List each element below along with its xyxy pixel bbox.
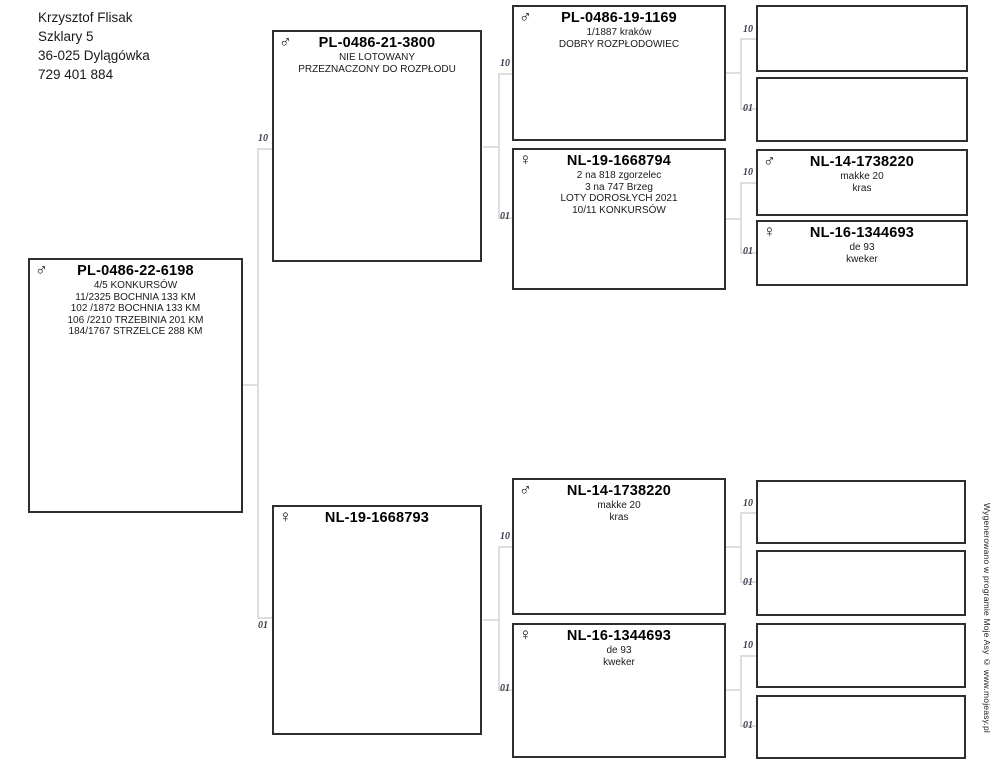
connector-line — [257, 148, 272, 150]
pedigree-box-sire-sire: ♂ PL-0486-19-1169 1/1887 kraków DOBRY RO… — [512, 5, 726, 141]
result-line: kras — [514, 512, 724, 524]
owner-info: Krzysztof Flisak Szklary 5 36-025 Dylągó… — [38, 8, 150, 84]
female-icon: ♀ — [763, 222, 776, 241]
ring-number: NL-19-1668793 — [274, 510, 480, 526]
male-icon: ♂ — [519, 7, 532, 26]
owner-phone: 729 401 884 — [38, 65, 150, 84]
sire-code-label: 10 — [729, 640, 753, 651]
pedigree-box-dam-sire-dam-empty — [756, 550, 966, 616]
pedigree-box-sire-dam: ♀ NL-19-1668794 2 na 818 zgorzelec 3 na … — [512, 148, 726, 290]
ring-number: PL-0486-19-1169 — [514, 10, 724, 26]
pedigree-page: Krzysztof Flisak Szklary 5 36-025 Dylągó… — [0, 0, 1000, 768]
pedigree-box-subject: ♂ PL-0486-22-6198 4/5 KONKURSÓW 11/2325 … — [28, 258, 243, 513]
sire-code-label: 10 — [729, 24, 753, 35]
dam-code-label: 01 — [486, 683, 510, 694]
result-line: kweker — [758, 254, 966, 266]
connector-line — [740, 182, 742, 253]
connector-line — [257, 148, 259, 619]
result-line: 4/5 KONKURSÓW — [30, 280, 241, 292]
female-icon: ♀ — [519, 150, 532, 169]
ring-number: NL-16-1344693 — [514, 628, 724, 644]
result-line: DOBRY ROZPŁODOWIEC — [514, 39, 724, 51]
male-icon: ♂ — [35, 260, 48, 279]
pedigree-box-dam-dam: ♀ NL-16-1344693 de 93 kweker — [512, 623, 726, 758]
result-line: PRZEZNACZONY DO ROZPŁODU — [274, 64, 480, 76]
ring-number: NL-14-1738220 — [758, 154, 966, 170]
result-line: 11/2325 BOCHNIA 133 KM — [30, 292, 241, 304]
pedigree-box-sire-sire-dam-empty — [756, 77, 968, 142]
result-line: LOTY DOROSŁYCH 2021 — [514, 193, 724, 205]
connector-line — [740, 655, 742, 727]
female-icon: ♀ — [279, 507, 292, 526]
owner-address-line2: 36-025 Dylągówka — [38, 46, 150, 65]
result-line: 2 na 818 zgorzelec — [514, 170, 724, 182]
pedigree-box-dam-dam-sire-empty — [756, 623, 966, 688]
ring-number: NL-14-1738220 — [514, 483, 724, 499]
result-line: 102 /1872 BOCHNIA 133 KM — [30, 303, 241, 315]
connector-line — [257, 617, 272, 619]
connector-line — [498, 73, 512, 75]
pedigree-box-dam-dam-dam-empty — [756, 695, 966, 759]
ring-number: PL-0486-22-6198 — [30, 263, 241, 279]
sire-code-label: 10 — [486, 58, 510, 69]
sire-code-label: 10 — [729, 498, 753, 509]
female-icon: ♀ — [519, 625, 532, 644]
result-line: 106 /2210 TRZEBINIA 201 KM — [30, 315, 241, 327]
result-line: 1/1887 kraków — [514, 27, 724, 39]
result-line: NIE LOTOWANY — [274, 52, 480, 64]
result-line: 3 na 747 Brzeg — [514, 182, 724, 194]
pedigree-box-sire-dam-dam: ♀ NL-16-1344693 de 93 kweker — [756, 220, 968, 286]
sire-code-label: 10 — [729, 167, 753, 178]
connector-line — [243, 384, 257, 386]
connector-line — [740, 38, 742, 110]
male-icon: ♂ — [519, 480, 532, 499]
pedigree-box-sire-dam-sire: ♂ NL-14-1738220 makke 20 kras — [756, 149, 968, 216]
result-line: makke 20 — [514, 500, 724, 512]
pedigree-box-sire-sire-sire-empty — [756, 5, 968, 72]
connector-line — [726, 218, 740, 220]
connector-line — [726, 689, 740, 691]
connector-line — [740, 655, 756, 657]
pedigree-box-dam-sire: ♂ NL-14-1738220 makke 20 kras — [512, 478, 726, 615]
dam-code-label: 01 — [486, 211, 510, 222]
connector-line — [726, 546, 740, 548]
connector-line — [740, 38, 756, 40]
ring-number: NL-19-1668794 — [514, 153, 724, 169]
connector-line — [498, 546, 500, 691]
dam-code-label: 01 — [729, 246, 753, 257]
result-line: kras — [758, 183, 966, 195]
male-icon: ♂ — [279, 32, 292, 51]
program-credit-watermark: Wygenerowano w programie Moje Asy © www.… — [978, 503, 992, 768]
ring-number: NL-16-1344693 — [758, 225, 966, 241]
connector-line — [483, 146, 498, 148]
connector-line — [740, 182, 756, 184]
pedigree-box-dam-sire-sire-empty — [756, 480, 966, 544]
dam-code-label: 01 — [729, 103, 753, 114]
result-line: 184/1767 STRZELCE 288 KM — [30, 326, 241, 338]
result-line: makke 20 — [758, 171, 966, 183]
connector-line — [740, 512, 742, 583]
connector-line — [740, 512, 756, 514]
connector-line — [726, 72, 740, 74]
result-line: kweker — [514, 657, 724, 669]
dam-code-label: 01 — [729, 577, 753, 588]
sire-code-label: 10 — [486, 531, 510, 542]
dam-code-label: 01 — [729, 720, 753, 731]
dam-code-label: 01 — [244, 620, 268, 631]
owner-name: Krzysztof Flisak — [38, 8, 150, 27]
connector-line — [483, 619, 498, 621]
sire-code-label: 10 — [244, 133, 268, 144]
male-icon: ♂ — [763, 151, 776, 170]
result-line: de 93 — [758, 242, 966, 254]
connector-line — [498, 73, 500, 219]
pedigree-box-dam: ♀ NL-19-1668793 — [272, 505, 482, 735]
result-line: de 93 — [514, 645, 724, 657]
owner-address-line1: Szklary 5 — [38, 27, 150, 46]
ring-number: PL-0486-21-3800 — [274, 35, 480, 51]
connector-line — [498, 546, 512, 548]
result-line: 10/11 KONKURSÓW — [514, 205, 724, 217]
pedigree-box-sire: ♂ PL-0486-21-3800 NIE LOTOWANY PRZEZNACZ… — [272, 30, 482, 262]
